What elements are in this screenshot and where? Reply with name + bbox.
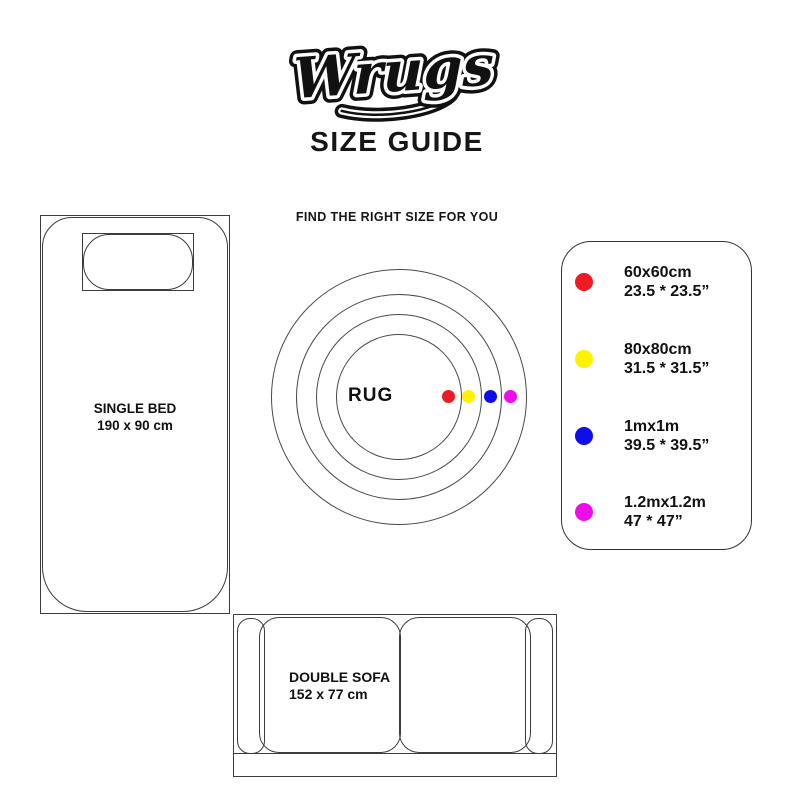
legend-row-1.2mx1.2m: 1.2mx1.2m 47 * 47” [575, 493, 706, 531]
legend-row-1mx1m: 1mx1m 39.5 * 39.5” [575, 417, 709, 455]
legend-size-in: 39.5 * 39.5” [624, 436, 709, 455]
legend-dot-yellow [575, 350, 593, 368]
rug-dot-60x60 [442, 390, 455, 403]
legend-dot-magenta [575, 503, 593, 521]
sofa-cushion-right [399, 617, 531, 753]
bed-pillow-inner-outline [83, 234, 193, 290]
legend-size-cm: 60x60cm [624, 263, 709, 282]
sofa-label: DOUBLE SOFA 152 x 77 cm [289, 669, 390, 703]
bed-pillow-outline [82, 233, 194, 291]
legend-text-60x60: 60x60cm 23.5 * 23.5” [624, 263, 709, 301]
brand-logo: Wrugs Wrugs Wrugs [287, 28, 507, 122]
legend-row-80x80: 80x80cm 31.5 * 31.5” [575, 340, 709, 378]
size-legend-panel: 60x60cm 23.5 * 23.5” 80x80cm 31.5 * 31.5… [561, 241, 752, 550]
bed-name: SINGLE BED [41, 400, 229, 417]
bed-label: SINGLE BED 190 x 90 cm [41, 400, 229, 434]
page-title: SIZE GUIDE [0, 126, 794, 158]
logo-text: Wrugs [293, 32, 494, 112]
legend-size-in: 31.5 * 31.5” [624, 359, 709, 378]
sofa-name: DOUBLE SOFA [289, 669, 390, 686]
legend-size-in: 23.5 * 23.5” [624, 282, 709, 301]
sofa-dimensions: 152 x 77 cm [289, 686, 390, 703]
double-sofa-outline: DOUBLE SOFA 152 x 77 cm [233, 614, 557, 777]
legend-size-cm: 80x80cm [624, 340, 709, 359]
size-guide-canvas: Wrugs Wrugs Wrugs SIZE GUIDE FIND THE RI… [0, 0, 794, 794]
bed-dimensions: 190 x 90 cm [41, 417, 229, 434]
rug-dot-1mx1m [484, 390, 497, 403]
single-bed-outline: SINGLE BED 190 x 90 cm [40, 215, 230, 614]
legend-text-1.2mx1.2m: 1.2mx1.2m 47 * 47” [624, 493, 706, 531]
legend-text-1mx1m: 1mx1m 39.5 * 39.5” [624, 417, 709, 455]
legend-row-60x60: 60x60cm 23.5 * 23.5” [575, 263, 709, 301]
legend-size-in: 47 * 47” [624, 512, 706, 531]
legend-dot-red [575, 273, 593, 291]
rug-dot-1.2mx1.2m [504, 390, 517, 403]
legend-text-80x80: 80x80cm 31.5 * 31.5” [624, 340, 709, 378]
legend-size-cm: 1.2mx1.2m [624, 493, 706, 512]
sofa-front-rail-line [234, 753, 556, 754]
legend-size-cm: 1mx1m [624, 417, 709, 436]
rug-dot-80x80 [462, 390, 475, 403]
rug-label: RUG [348, 385, 448, 407]
legend-dot-blue [575, 427, 593, 445]
